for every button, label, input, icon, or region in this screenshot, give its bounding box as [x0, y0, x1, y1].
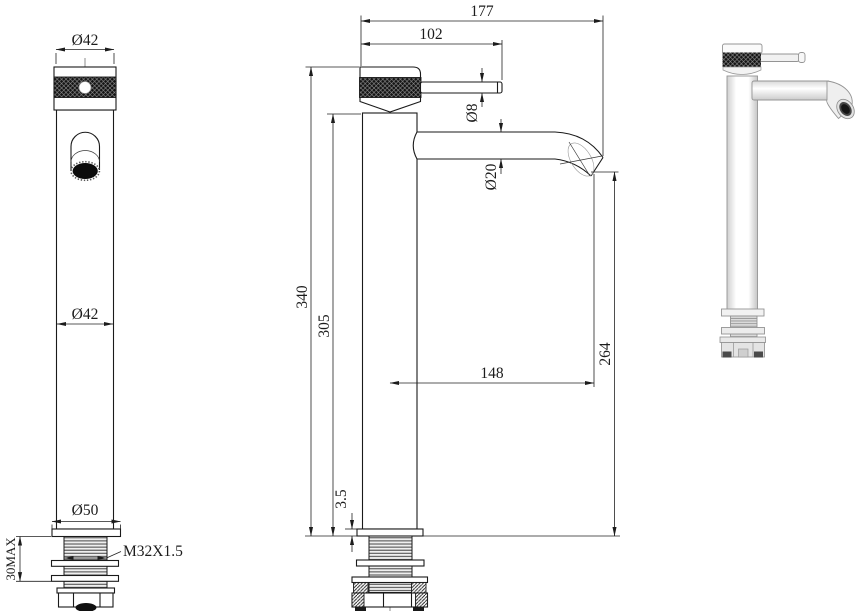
side-knurl-band [360, 78, 422, 98]
side-body [363, 113, 418, 529]
hatch-block-left [352, 593, 364, 607]
lever-handle-rod [421, 82, 503, 93]
front-base [52, 529, 121, 611]
rendered-handle-skirt [723, 67, 761, 75]
rendered-knurl-band [723, 53, 762, 68]
side-flange [357, 529, 423, 536]
front-nut-chamfer [57, 588, 115, 593]
rendered-flange [722, 309, 765, 316]
spout-bottom-edge [417, 159, 591, 176]
spout-silhouette [413, 132, 603, 176]
front-set-screw [79, 82, 91, 94]
dim-label-lever-diameter: Ø8 [464, 103, 481, 122]
hatch-block-right [412, 583, 427, 594]
dim-label-overall-reach: 177 [470, 3, 494, 20]
dim-outlet-height: 264 [591, 172, 619, 536]
dim-label-base-diameter: Ø50 [72, 502, 99, 519]
rendered-base [720, 309, 766, 358]
dim-label-spout-diameter: Ø20 [483, 163, 500, 190]
dim-body-height: 305 [316, 114, 361, 536]
hatch-block-right [416, 593, 428, 607]
dim-label-top-diameter: Ø42 [72, 32, 99, 49]
rendered-spout-tube [752, 81, 830, 100]
front-flange [52, 529, 121, 537]
rendered-bottom-stub [739, 349, 749, 357]
front-washer-upper [52, 561, 119, 567]
front-view: Ø42 Ø42 Ø50 30MAX M32X1.5 [3, 32, 183, 611]
side-washer [357, 560, 425, 566]
rendered-handle-top [723, 44, 763, 54]
dim-flange-thickness: 3.5 [333, 489, 358, 552]
dim-label-handle-reach: 102 [419, 26, 442, 43]
rendered-nut-plate [720, 337, 766, 343]
dim-spout-projection: 148 [390, 174, 594, 387]
base-foot [413, 607, 424, 611]
dim-label-flange-thickness: 3.5 [333, 489, 350, 509]
rendered-body [727, 76, 758, 310]
side-plate [352, 577, 428, 583]
leader-line [107, 552, 122, 559]
rendered-view [720, 44, 858, 358]
dim-label-body-diameter: Ø42 [72, 306, 99, 323]
side-spout [413, 132, 603, 180]
dim-label-thread-spec: M32X1.5 [123, 543, 183, 560]
rendered-washer [722, 328, 765, 335]
dim-label-spout-projection: 148 [480, 365, 504, 382]
rendered-lever-rod [757, 54, 800, 62]
rendered-base-foot [723, 352, 732, 358]
technical-drawing-canvas: Ø42 Ø42 Ø50 30MAX M32X1.5 [0, 0, 866, 611]
base-foot [355, 607, 366, 611]
faucet-dimension-drawing: Ø42 Ø42 Ø50 30MAX M32X1.5 [0, 0, 866, 611]
rendered-base-foot [754, 352, 763, 358]
front-washer-lower [52, 576, 119, 582]
dim-lever-diameter: Ø8 [464, 68, 482, 122]
dim-mounting-thickness: 30MAX [3, 537, 51, 582]
side-view: 177 102 Ø8 Ø20 340 305 [294, 3, 620, 611]
dim-label-overall-height: 340 [294, 285, 311, 309]
dim-label-mounting-thickness: 30MAX [3, 537, 18, 581]
dim-overall-height: 340 [294, 67, 359, 536]
rendered-lever-tip [799, 53, 806, 63]
outlet-opening [73, 163, 98, 179]
dim-label-outlet-height: 264 [597, 342, 614, 366]
hatch-block-left [354, 583, 369, 594]
side-base [352, 529, 428, 611]
front-spout-outlet [71, 132, 100, 180]
dim-label-body-height: 305 [316, 314, 333, 338]
